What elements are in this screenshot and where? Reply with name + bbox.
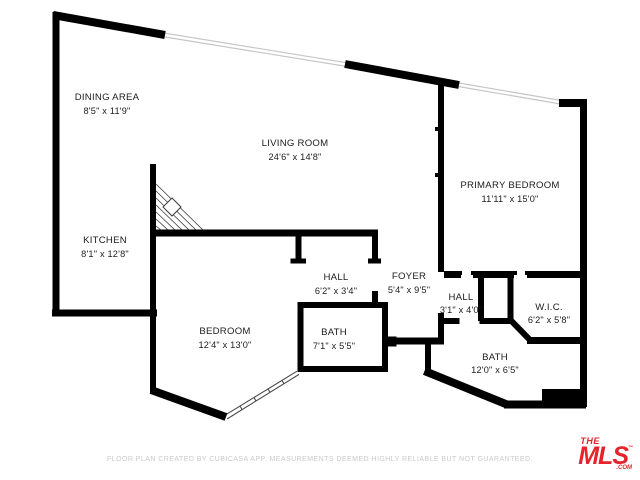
room-label-living-room: LIVING ROOM bbox=[262, 138, 329, 149]
tick bbox=[435, 173, 439, 177]
wall-bath2-step bbox=[542, 389, 584, 404]
room-label-hall-1: HALL bbox=[324, 272, 349, 283]
room-label-bedroom: BEDROOM bbox=[199, 326, 250, 337]
wall-bath2-diagonal bbox=[425, 371, 508, 405]
window-top-right bbox=[459, 83, 564, 101]
room-label-kitchen: KITCHEN bbox=[83, 235, 127, 246]
wall-top-diagonal-2 bbox=[345, 64, 459, 85]
rail-rung bbox=[268, 389, 270, 393]
room-dims-bath-2: 12'0" x 6'5" bbox=[471, 365, 519, 375]
window-top-left bbox=[165, 37, 347, 67]
logo-trademark: ™ bbox=[628, 445, 633, 451]
rail-rung bbox=[282, 380, 284, 384]
tick bbox=[525, 271, 528, 275]
staircase-hatch bbox=[156, 184, 203, 230]
room-dims-primary-bedroom: 11'11" x 15'0" bbox=[482, 194, 539, 204]
room-dims-kitchen: 8'1" x 12'8" bbox=[81, 249, 129, 259]
window-top-right bbox=[459, 87, 564, 105]
disclaimer-text: FLOOR PLAN CREATED BY CUBICASA APP. MEAS… bbox=[0, 456, 640, 463]
room-label-foyer: FOYER bbox=[392, 271, 426, 282]
room-dims-bath-1: 7'1" x 5'5" bbox=[313, 341, 355, 351]
tick bbox=[471, 271, 474, 275]
room-label-primary-bedroom: PRIMARY BEDROOM bbox=[460, 180, 559, 191]
the-mls-logo: THE MLS™ .COM bbox=[578, 437, 633, 471]
room-label-wic: W.I.C. bbox=[535, 302, 563, 313]
bedroom-window-rail bbox=[225, 371, 297, 415]
room-dims-hall-2: 3'1" x 4'0" bbox=[440, 305, 482, 315]
floor-plan-drawing: DINING AREA 8'5" x 11'9" LIVING ROOM 24'… bbox=[0, 0, 640, 480]
logo-mls-text: MLS bbox=[578, 446, 628, 467]
bedroom-window-rail bbox=[227, 374, 299, 419]
room-label-bath-2: BATH bbox=[482, 352, 508, 363]
room-label-hall-2: HALL bbox=[449, 292, 474, 303]
room-dims-wic: 6'2" x 5'8" bbox=[528, 315, 570, 325]
room-dims-hall-1: 6'2" x 3'4" bbox=[315, 286, 357, 296]
wall-top-diagonal-1 bbox=[53, 15, 165, 35]
wall-bedroom-diagonal bbox=[151, 390, 226, 417]
room-dims-bedroom: 12'4" x 13'0" bbox=[199, 340, 252, 350]
room-dims-foyer: 5'4" x 9'5" bbox=[388, 285, 430, 295]
tick bbox=[514, 271, 517, 275]
window-top-left bbox=[165, 33, 347, 63]
room-label-dining-area: DINING AREA bbox=[75, 92, 140, 103]
rail-rung bbox=[240, 406, 242, 410]
tick bbox=[435, 127, 439, 131]
tick bbox=[459, 271, 462, 275]
floor-plan-page: DINING AREA 8'5" x 11'9" LIVING ROOM 24'… bbox=[0, 0, 640, 480]
room-dims-dining-area: 8'5" x 11'9" bbox=[84, 106, 131, 116]
room-label-bath-1: BATH bbox=[321, 327, 347, 338]
bath1-door-jamb bbox=[387, 337, 397, 347]
room-dims-living-room: 24'6" x 14'8" bbox=[269, 152, 322, 162]
rail-rung bbox=[254, 398, 256, 402]
